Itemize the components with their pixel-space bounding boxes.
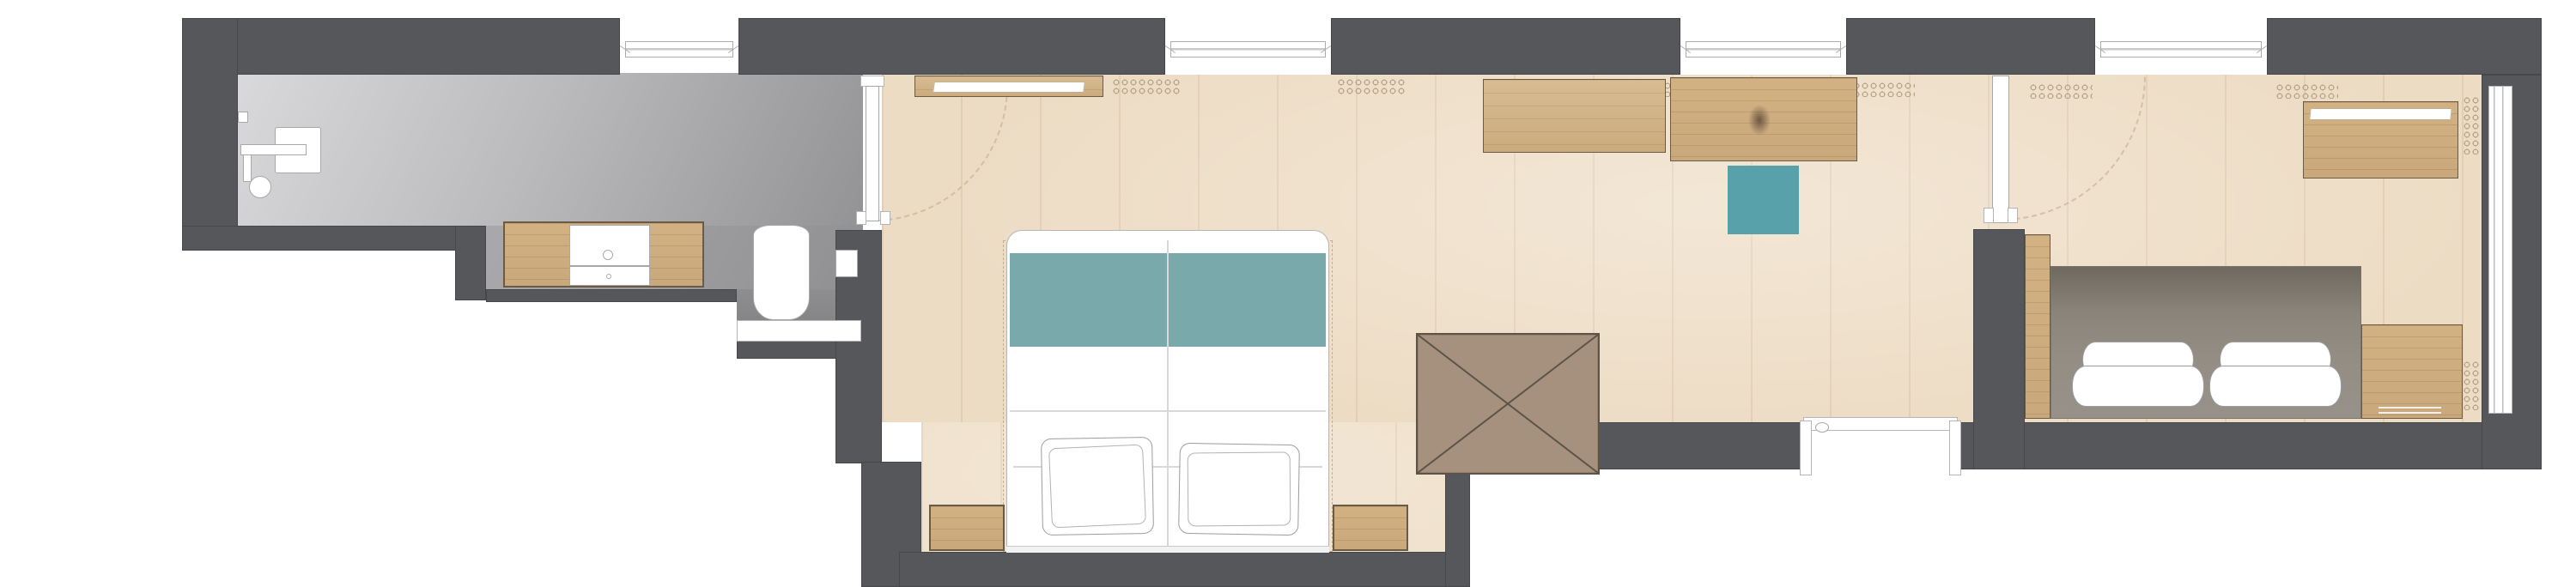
toilet: [753, 225, 810, 320]
luggage-rack-x-icon: [1416, 333, 1600, 475]
bed-center-split: [1167, 240, 1169, 549]
wall-bathroom-bottom-left: [182, 226, 486, 251]
shower-head-icon: [249, 176, 271, 198]
toilet-niche-ledge: [737, 320, 861, 342]
pillow-left: [1041, 437, 1154, 536]
vanity-knob: [606, 274, 611, 279]
connecting-door-leaf: [1992, 76, 2009, 223]
window-second-bedroom: [2100, 41, 2262, 57]
wall-room-divider: [1973, 229, 2025, 469]
entrance-door-hinge: [1815, 422, 1829, 433]
shower-valve: [238, 112, 248, 123]
wall-bed-bottom: [899, 552, 1470, 587]
nightstand-right: [1333, 505, 1408, 551]
side-cabinet: [2361, 324, 2463, 419]
wall-top-mid: [1331, 18, 1680, 75]
entrance-jamb-left: [1800, 421, 1812, 475]
vanity-sink: [569, 225, 650, 266]
window-bedroom: [1170, 41, 1326, 57]
bathroom-door-jamb-right: [880, 211, 890, 225]
radiator-right-wall-upper: [2463, 96, 2480, 154]
bathroom-floor: [238, 73, 863, 226]
bed-threshold-strip: [1006, 546, 1329, 553]
toilet-flush-plate: [835, 250, 858, 277]
folded-duvet-left: [2072, 342, 2204, 407]
pillow-right: [1178, 443, 1300, 536]
wall-bathroom-step: [455, 226, 486, 300]
connecting-door-jamb-left: [1984, 208, 1994, 223]
sideboard: [1483, 79, 1666, 153]
wall-top-bathroom: [182, 18, 620, 75]
wall-top-bedroom: [738, 18, 1165, 75]
radiator-bedroom-right: [1337, 78, 1406, 96]
radiator-living-right: [1852, 82, 1915, 97]
window-living: [1686, 41, 1841, 57]
window-bathroom: [625, 41, 733, 57]
luggage-rack: [1416, 333, 1600, 475]
wall-top-right: [2267, 18, 2542, 75]
sofa-side-frame: [2025, 234, 2050, 419]
radiator-right-wall-lower: [2463, 360, 2480, 410]
wall-top-living: [1846, 18, 2095, 75]
wall-bathroom-bottom-mid: [486, 289, 737, 302]
side-cabinet-drawer-lines: [2379, 407, 2441, 417]
wardrobe-shelf-top: [2309, 108, 2451, 120]
wall-bottom-right: [1958, 422, 2542, 469]
bathroom-door-leaf: [866, 86, 879, 221]
window-right-wall: [2488, 86, 2512, 414]
folded-duvet-right: [2209, 342, 2342, 407]
bathroom-door-jamb-left: [856, 211, 866, 225]
wall-left: [182, 18, 238, 251]
nightstand-left: [929, 505, 1005, 551]
shower-riser: [243, 154, 252, 182]
radiator-room2-left: [2029, 83, 2093, 99]
teal-stool: [1728, 166, 1799, 234]
desk-wood-knot: [1748, 105, 1771, 136]
radiator-bedroom-left: [1112, 78, 1181, 96]
wall-shelf-top: [933, 82, 1085, 93]
connecting-door-jamb-right: [2008, 208, 2018, 223]
radiator-room2-right: [2275, 83, 2338, 99]
entrance-jamb-right: [1949, 421, 1961, 475]
floor-plan: [0, 0, 2576, 587]
sink-drain: [603, 250, 613, 260]
